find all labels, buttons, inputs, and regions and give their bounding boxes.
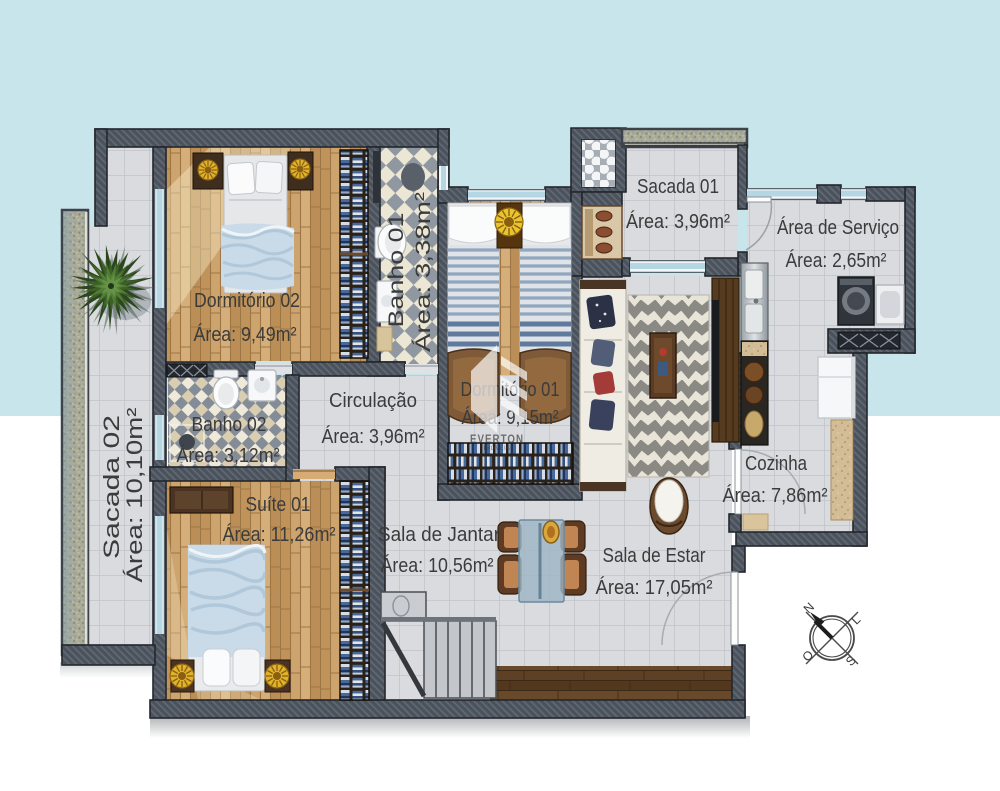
svg-text:Circulação: Circulação xyxy=(329,390,417,412)
svg-text:Banho 01: Banho 01 xyxy=(385,213,408,328)
svg-text:Área: 3,38m²: Área: 3,38m² xyxy=(412,192,435,352)
svg-text:Área: 11,26m²: Área: 11,26m² xyxy=(223,523,336,546)
svg-text:Área: 3,96m²: Área: 3,96m² xyxy=(626,210,730,233)
svg-text:Suíte 01: Suíte 01 xyxy=(246,494,311,516)
svg-text:Área de Serviço: Área de Serviço xyxy=(777,216,899,239)
svg-text:Área: 10,56m²: Área: 10,56m² xyxy=(381,554,494,577)
svg-text:Área: 2,65m²: Área: 2,65m² xyxy=(786,249,887,272)
svg-text:Área: 3,12m²: Área: 3,12m² xyxy=(177,444,280,467)
svg-text:IMÓVEIS: IMÓVEIS xyxy=(484,443,511,452)
svg-text:Cozinha: Cozinha xyxy=(745,453,808,475)
svg-text:Banho 02: Banho 02 xyxy=(192,414,267,436)
svg-text:Área: 17,05m²: Área: 17,05m² xyxy=(596,576,713,599)
svg-text:Sala de Estar: Sala de Estar xyxy=(603,545,706,567)
svg-text:Dormitório 02: Dormitório 02 xyxy=(194,290,300,312)
svg-text:Área: 7,86m²: Área: 7,86m² xyxy=(723,484,828,507)
svg-text:Área: 3,96m²: Área: 3,96m² xyxy=(322,425,425,448)
svg-text:Sala de Jantar: Sala de Jantar xyxy=(378,524,500,546)
svg-text:Área: 10,10m²: Área: 10,10m² xyxy=(122,408,147,583)
svg-text:Sacada 02: Sacada 02 xyxy=(99,415,124,559)
svg-text:Sacada 01: Sacada 01 xyxy=(637,176,719,198)
svg-text:Área: 9,49m²: Área: 9,49m² xyxy=(194,323,297,346)
